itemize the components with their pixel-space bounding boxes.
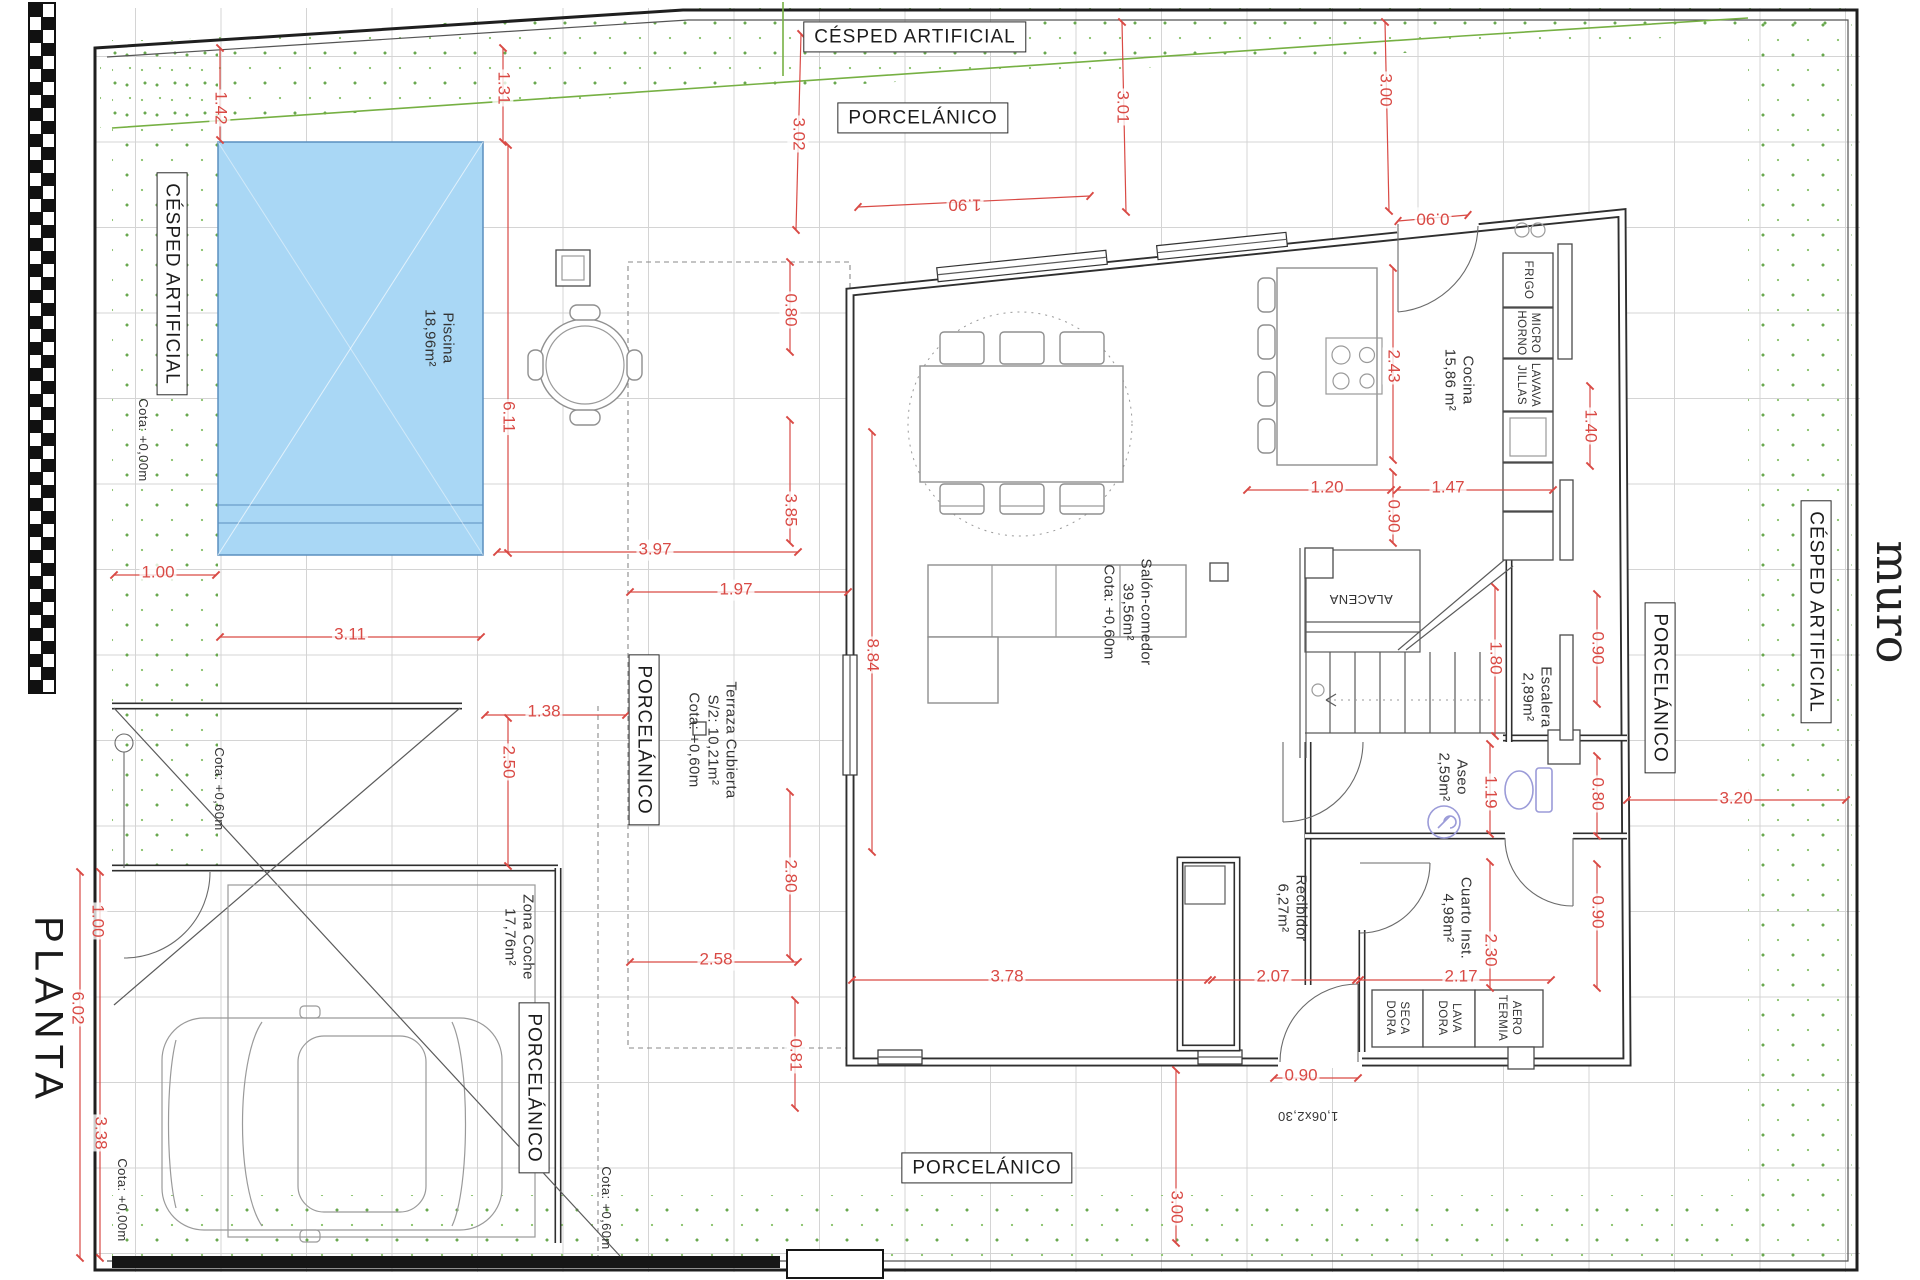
label-salon-comedor: Salón-comedor 39,56m² Cota: +0,60m: [1100, 559, 1155, 666]
label-aseo: Aseo 2,59m²: [1434, 752, 1471, 801]
dimension-label: 2.80: [780, 857, 801, 894]
dimension-label: 1.19: [1480, 773, 1501, 810]
label-secadora: SECA DORA: [1383, 1000, 1411, 1035]
floor-plan-sheet: CÉSPED ARTIFICIALPORCELÁNICOCÉSPED ARTIF…: [0, 0, 1920, 1280]
dimension-label: 1.00: [87, 902, 108, 939]
dimension-label: 0.90: [1414, 208, 1451, 229]
porcelanico-terrace: PORCELÁNICO: [628, 654, 659, 825]
cesped-artificial-left: CÉSPED ARTIFICIAL: [156, 172, 187, 395]
dimension-label: 2.58: [697, 950, 734, 971]
plan-title: PLANTA: [26, 911, 71, 1111]
dimension-label: 3.78: [988, 967, 1025, 988]
dimension-label: 0.80: [780, 291, 801, 328]
dimension-label: 3.00: [1166, 1188, 1187, 1225]
dimension-label: 3.02: [788, 115, 809, 152]
dimension-label: 0.90: [1282, 1066, 1319, 1087]
dimension-label: 3.01: [1112, 88, 1133, 125]
label-cota-garage: Cota: +0,60m: [211, 747, 227, 830]
label-cota-left: Cota: +0,00m: [135, 398, 151, 481]
dimension-label: 1.00: [139, 563, 176, 584]
dimension-label: 3.11: [332, 625, 368, 646]
dimension-label: 2.07: [1254, 967, 1291, 988]
label-recibidor: Recibidor 6,27m²: [1273, 875, 1310, 942]
dimension-label: 0.90: [1587, 629, 1608, 666]
label-frigo: FRIGO: [1521, 261, 1535, 300]
dimension-label: 1.80: [1485, 639, 1506, 676]
label-cuarto-inst: Cuarto Inst. 4,98m²: [1438, 877, 1475, 959]
label-alacena: ALACENA: [1329, 591, 1393, 607]
cesped-artificial-right: CÉSPED ARTIFICIAL: [1800, 500, 1831, 723]
label-micro-horno: MICRO HORNO: [1514, 310, 1542, 355]
dimension-label: 3.00: [1375, 71, 1396, 108]
dimension-label: 1.31: [493, 69, 514, 106]
dimension-label: 3.97: [636, 540, 673, 561]
label-piscina: Piscina 18,96m²: [420, 309, 457, 367]
label-aerotermia: AERO TERMIA: [1495, 995, 1523, 1041]
cesped-artificial-top: CÉSPED ARTIFICIAL: [803, 21, 1026, 52]
porcelanico-bottom: PORCELÁNICO: [901, 1152, 1072, 1183]
dimension-label: 1.20: [1308, 478, 1345, 499]
dimension-label: 1.38: [525, 702, 562, 723]
dimension-label: 2.50: [498, 743, 519, 780]
dimension-label: 3.85: [780, 491, 801, 528]
dimension-label: 0.81: [785, 1036, 806, 1073]
dimension-label: 0.90: [1383, 497, 1404, 534]
label-cota-bottom-left: Cota: +0,00m: [114, 1158, 130, 1241]
label-escalera: Escalera 2,89m²: [1518, 666, 1555, 728]
dimension-label: 0.80: [1587, 775, 1608, 812]
dimension-label: 8.84: [862, 636, 883, 673]
label-zona-coche: Zona Coche 17,76m²: [500, 894, 537, 980]
dimension-label: 1.90: [946, 194, 983, 215]
label-cota-bottom-mid: Cota: +0,60m: [598, 1166, 614, 1249]
label-terraza: Terraza Cubierta S/2: 10,21m² Cota: +0,6…: [685, 681, 740, 798]
porcelanico-garage: PORCELÁNICO: [518, 1002, 549, 1173]
dimension-label: 1.97: [717, 580, 754, 601]
label-lavavajillas: LAVAVA JILLAS: [1514, 363, 1542, 407]
dimension-label: 2.43: [1383, 347, 1404, 384]
dimension-label: 1.42: [210, 89, 231, 126]
label-cocina: Cocina 15,86 m²: [1440, 349, 1477, 411]
dimension-label: 3.20: [1717, 789, 1754, 810]
dimension-label: 1.47: [1429, 478, 1466, 499]
muro-label: muro: [1866, 527, 1920, 677]
dimension-label: 6.11: [498, 399, 519, 435]
dimension-label: 0.90: [1587, 893, 1608, 930]
dimension-label: 2.17: [1442, 967, 1479, 988]
label-layer: CÉSPED ARTIFICIALPORCELÁNICOCÉSPED ARTIF…: [0, 0, 1920, 1280]
porcelanico-right: PORCELÁNICO: [1644, 602, 1675, 773]
porcelanico-top: PORCELÁNICO: [837, 102, 1008, 133]
dimension-label: 2.30: [1480, 931, 1501, 968]
dimension-label: 1.40: [1580, 407, 1601, 444]
label-door-size: 1,06x2,30: [1278, 1108, 1339, 1124]
dimension-label: 3.38: [90, 1114, 111, 1151]
label-lavadora: LAVA DORA: [1435, 1000, 1463, 1035]
